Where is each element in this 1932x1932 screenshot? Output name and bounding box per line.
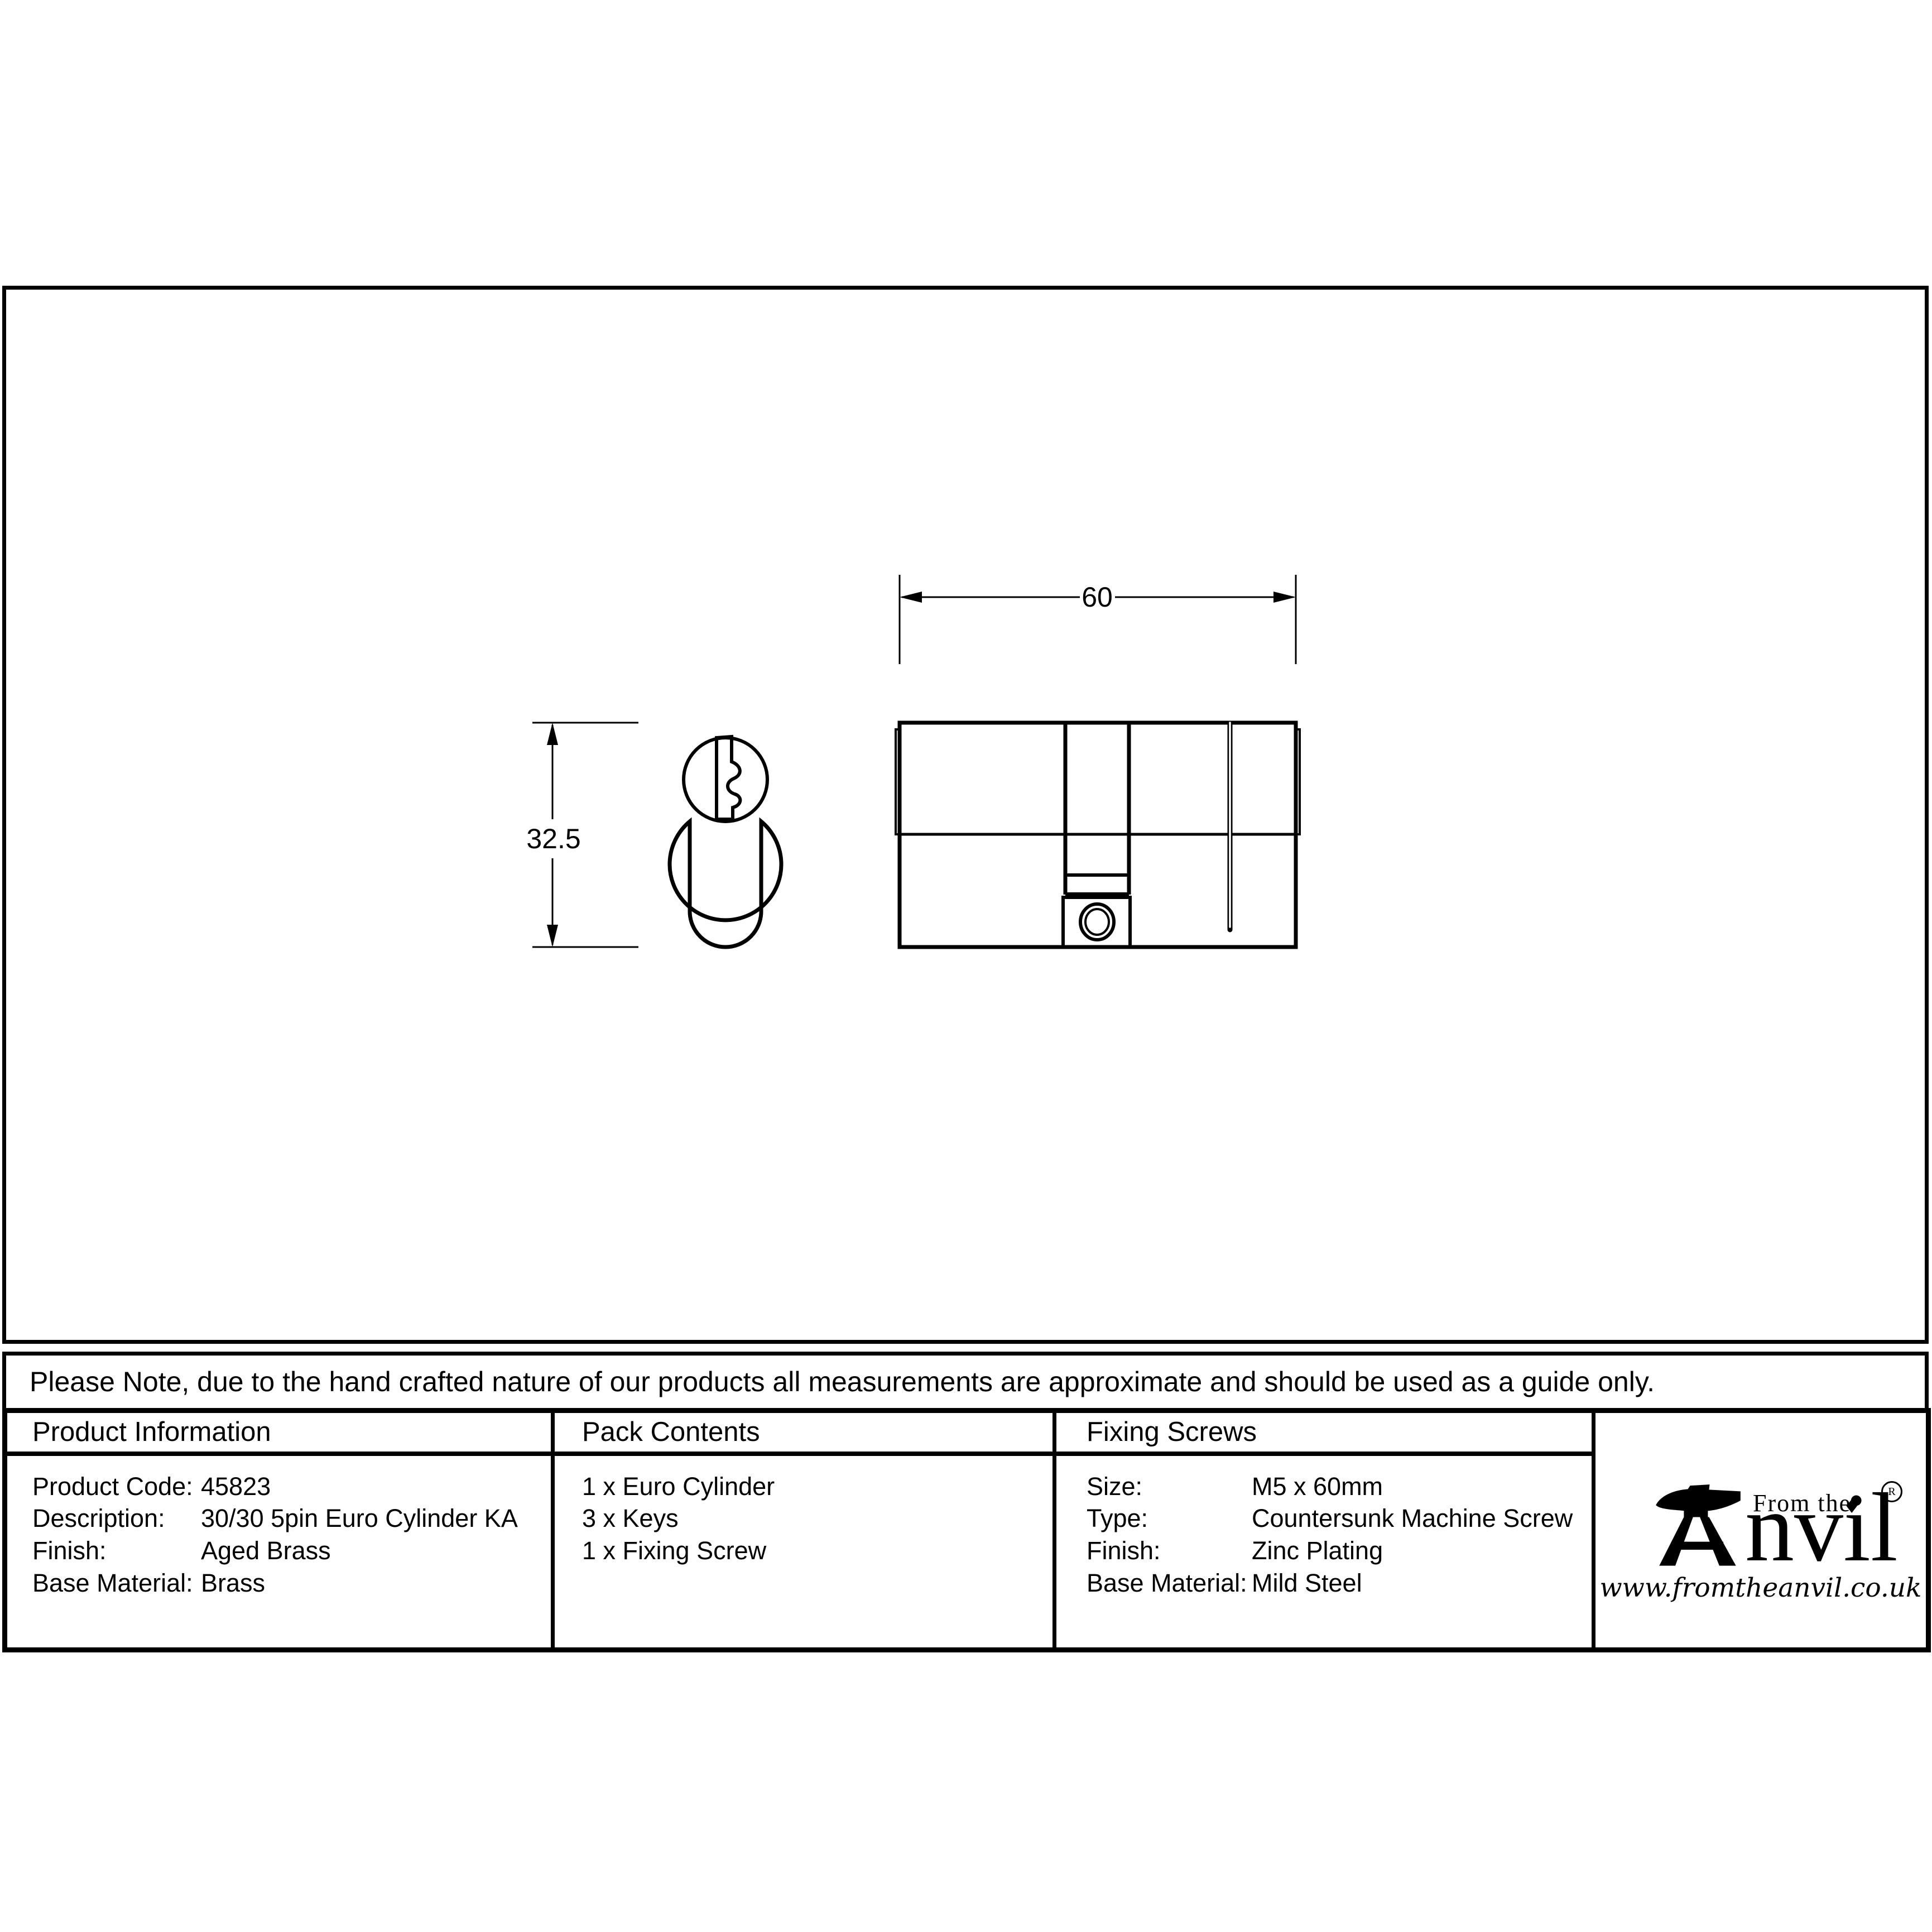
screw-material-value: Mild Steel (1252, 1569, 1362, 1598)
column-divider-2 (1052, 1413, 1056, 1647)
screw-size-value: M5 x 60mm (1252, 1472, 1383, 1501)
pack-item-3: 1 x Fixing Screw (582, 1536, 766, 1565)
description-label: Description: (32, 1504, 165, 1533)
screw-type-label: Type: (1087, 1504, 1148, 1533)
base-material-label: Base Material: (32, 1569, 193, 1598)
screw-size-label: Size: (1087, 1472, 1142, 1501)
logo-url: www.fromtheanvil.co.uk (1595, 1573, 1926, 1603)
dim-arrow-left (900, 592, 922, 603)
header-fixing-screws: Fixing Screws (1087, 1416, 1257, 1448)
product-code-label: Product Code: (32, 1472, 193, 1501)
dimension-length: 60 (900, 575, 1296, 664)
fixing-screw-hole-inner (1085, 909, 1109, 935)
dim-height-label: 32.5 (526, 823, 580, 854)
cylinder-plug-circle (684, 738, 767, 821)
base-material-value: Brass (201, 1569, 265, 1598)
euro-cylinder-side-view (896, 723, 1300, 947)
registered-trademark-icon: R (1881, 1481, 1902, 1502)
anvil-icon (1652, 1484, 1744, 1570)
dim-arrow-up (547, 723, 558, 745)
column-divider-3 (1592, 1413, 1595, 1647)
header-product-information: Product Information (32, 1416, 271, 1448)
header-pack-contents: Pack Contents (582, 1416, 760, 1448)
product-code-value: 45823 (201, 1472, 271, 1501)
dim-length-label: 60 (1082, 581, 1113, 613)
finish-value: Aged Brass (201, 1536, 331, 1565)
spec-table: Product Information Pack Contents Fixing… (2, 1408, 1931, 1652)
logo-brand-text: nvil (1745, 1479, 1898, 1577)
screw-type-value: Countersunk Machine Screw (1252, 1504, 1573, 1533)
screw-finish-label: Finish: (1087, 1536, 1161, 1565)
datasheet-page: 60 32.5 Please Note, due to the hand cra… (0, 0, 1932, 1932)
brand-logo: From the ♦ nvil R www.fromtheanvil.co.uk (1595, 1413, 1926, 1637)
screw-finish-value: Zinc Plating (1252, 1536, 1383, 1565)
column-divider-1 (551, 1413, 555, 1647)
screw-material-label: Base Material: (1087, 1569, 1247, 1598)
euro-cylinder-front-view (670, 737, 781, 947)
keyhole-slot (717, 737, 740, 819)
dim-arrow-down (547, 925, 558, 947)
note-bar: Please Note, due to the hand crafted nat… (2, 1352, 1929, 1412)
dimension-height: 32.5 (515, 723, 638, 947)
note-text: Please Note, due to the hand crafted nat… (30, 1366, 1655, 1398)
description-value: 30/30 5pin Euro Cylinder KA (201, 1504, 518, 1533)
finish-label: Finish: (32, 1536, 107, 1565)
pack-item-2: 3 x Keys (582, 1504, 679, 1533)
cylinder-profile-outline (670, 821, 781, 947)
pack-item-1: 1 x Euro Cylinder (582, 1472, 775, 1501)
dim-arrow-right (1273, 592, 1296, 603)
header-underline (7, 1452, 1594, 1456)
